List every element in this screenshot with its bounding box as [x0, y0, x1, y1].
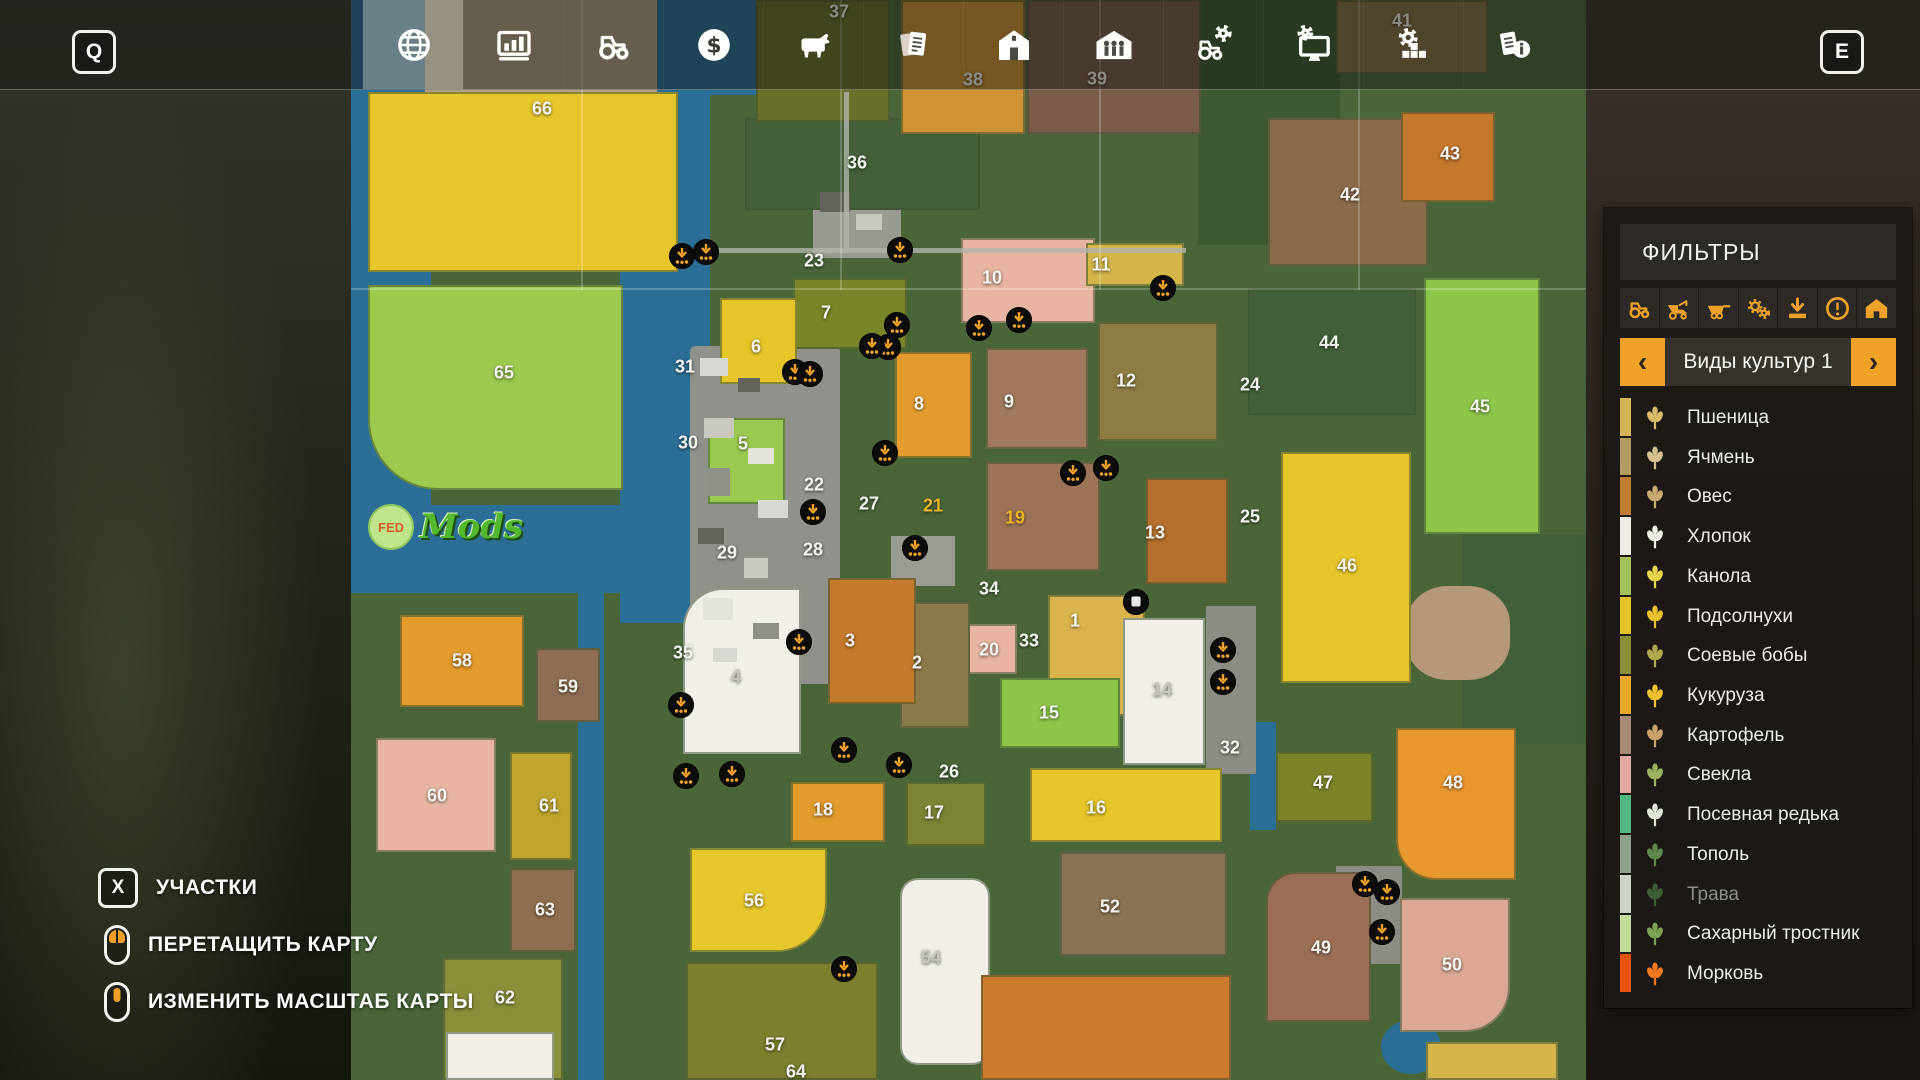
sell-point-marker-icon[interactable] [693, 239, 720, 266]
crop-filter-row[interactable]: Посевная редька [1620, 795, 1898, 835]
field-label-6: 6 [751, 337, 761, 358]
filter-button-harvester[interactable] [1660, 288, 1699, 328]
crop-icon [1640, 800, 1670, 830]
field-label-11: 11 [1091, 255, 1110, 276]
field-label-28: 28 [803, 540, 823, 561]
crop-color-stripe [1620, 438, 1631, 476]
field-label-46: 46 [1337, 556, 1357, 577]
toolbar-tab-production[interactable] [1363, 0, 1463, 89]
building [856, 214, 882, 230]
sell-point-marker-icon[interactable] [966, 315, 993, 342]
building [703, 598, 733, 620]
crop-filter-row[interactable]: Ячмень [1620, 438, 1898, 478]
crop-filter-row[interactable]: Канола [1620, 557, 1898, 597]
filter-tractor-icon [1626, 295, 1653, 322]
crop-label: Канола [1687, 566, 1751, 588]
sell-point-marker-icon[interactable] [668, 692, 695, 719]
crop-filter-row[interactable]: Пшеница [1620, 398, 1898, 438]
legend-label: ПЕРЕТАЩИТЬ КАРТУ [148, 933, 378, 957]
sell-point-marker-icon[interactable] [1374, 879, 1401, 906]
toolbar-tab-dollar[interactable]: $ [663, 0, 763, 89]
filter-button-warning[interactable] [1818, 288, 1857, 328]
field-label-19: 19 [1005, 508, 1025, 529]
toolbar-tab-cow[interactable] [763, 0, 863, 89]
crop-icon [1640, 443, 1670, 473]
field-label-15: 15 [1039, 703, 1059, 724]
info-document-icon [1494, 25, 1534, 65]
sell-point-marker-icon[interactable] [1210, 637, 1237, 664]
legend-row: ПЕРЕТАЩИТЬ КАРТУ [98, 923, 474, 967]
category-label: Виды культур 1 [1665, 338, 1851, 386]
map-controls-legend: XУЧАСТКИПЕРЕТАЩИТЬ КАРТУИЗМЕНИТЬ МАСШТАБ… [98, 866, 474, 1024]
field-label-47: 47 [1313, 773, 1333, 794]
sell-point-marker-icon[interactable] [1093, 455, 1120, 482]
crop-label: Кукуруза [1687, 685, 1765, 707]
field-17[interactable] [906, 782, 986, 846]
field-label-56: 56 [744, 891, 764, 912]
crop-label: Хлопок [1687, 526, 1751, 548]
sell-point-marker-icon[interactable] [1150, 275, 1177, 302]
field-15[interactable] [1000, 678, 1120, 748]
crop-color-stripe [1620, 756, 1631, 794]
field-label-31: 31 [675, 357, 695, 378]
crop-color-stripe [1620, 398, 1631, 436]
crop-icon [1640, 880, 1670, 910]
field-area[interactable] [1426, 1042, 1558, 1080]
field-label-59: 59 [558, 677, 578, 698]
crop-filter-row[interactable]: Хлопок [1620, 517, 1898, 557]
filter-button-download[interactable] [1778, 288, 1817, 328]
crop-filter-row[interactable]: Овес [1620, 477, 1898, 517]
building [708, 468, 730, 496]
crop-icon [1640, 641, 1670, 671]
field-label-16: 16 [1086, 798, 1106, 819]
field-label-63: 63 [535, 900, 555, 921]
field-label-3: 3 [845, 631, 855, 652]
filter-button-gears[interactable] [1739, 288, 1778, 328]
crop-filter-row[interactable]: Подсолнухи [1620, 597, 1898, 637]
toolbar-tab-infodoc[interactable] [1463, 0, 1563, 89]
field-18[interactable] [791, 782, 885, 842]
crop-label: Тополь [1687, 844, 1749, 866]
field-3[interactable] [828, 578, 916, 704]
maintenance-tractor-gear-icon [1194, 25, 1234, 65]
field-label-29: 29 [717, 543, 737, 564]
crop-filter-row[interactable]: Свекла [1620, 756, 1898, 796]
toolbar-tab-monitor[interactable] [1263, 0, 1363, 89]
field-52[interactable] [1060, 852, 1227, 956]
watermark-badge: FED [368, 504, 414, 550]
field-label-18: 18 [813, 800, 833, 821]
crop-icon [1640, 840, 1670, 870]
building [753, 623, 779, 639]
mouse-wheel-icon [104, 982, 130, 1022]
crop-color-stripe [1620, 676, 1631, 714]
sell-point-marker-icon[interactable] [831, 956, 858, 983]
crop-color-stripe [1620, 795, 1631, 833]
field-label-35: 35 [673, 643, 693, 664]
sell-point-marker-icon[interactable] [719, 761, 746, 788]
field-label-62: 62 [495, 988, 515, 1009]
crop-label: Картофель [1687, 725, 1784, 747]
field-label-14: 14 [1152, 680, 1172, 701]
sell-point-marker-icon[interactable] [886, 752, 913, 779]
sell-point-marker-icon[interactable] [859, 333, 886, 360]
crop-icon [1640, 562, 1670, 592]
production-gear-blocks-icon [1394, 25, 1434, 65]
watermark-script: Mods [420, 507, 523, 547]
svg-text:$: $ [706, 33, 721, 58]
field-label-42: 42 [1340, 185, 1360, 206]
crop-filter-row[interactable]: Тополь [1620, 835, 1898, 875]
field-label-58: 58 [452, 651, 472, 672]
top-menu-toolbar: $ [0, 0, 1920, 90]
filter-button-tractor[interactable] [1620, 288, 1659, 328]
field-label-26: 26 [939, 762, 959, 783]
garage-shed-people-icon [1094, 25, 1134, 65]
map-grid-line [351, 288, 1586, 290]
toolbar-tab-globe[interactable] [363, 0, 463, 89]
filter-category-selector: ‹ Виды культур 1 › [1620, 338, 1896, 386]
field-label-4: 4 [731, 667, 741, 688]
category-prev-button[interactable]: ‹ [1620, 338, 1665, 386]
mod-watermark: FEDMods [368, 504, 523, 550]
field-label-8: 8 [914, 394, 924, 415]
toolbar-tab-documents[interactable] [863, 0, 963, 89]
crop-icon [1640, 522, 1670, 552]
building [700, 358, 728, 376]
field-label-44: 44 [1319, 333, 1339, 354]
field-label-34: 34 [979, 579, 999, 600]
filter-harvester-icon [1665, 295, 1692, 322]
field-label-27: 27 [859, 494, 879, 515]
crop-filter-row[interactable]: Картофель [1620, 716, 1898, 756]
building [748, 448, 774, 464]
filter-quick-icons [1620, 288, 1896, 328]
crop-filter-list: ПшеницаЯчменьОвесХлопокКанолаПодсолнухиС… [1620, 398, 1898, 994]
crop-icon [1640, 760, 1670, 790]
crop-color-stripe [1620, 597, 1631, 635]
crop-color-stripe [1620, 517, 1631, 555]
crop-icon [1640, 602, 1670, 632]
hotkey-q: Q [72, 30, 116, 74]
road [686, 248, 1186, 253]
toolbar-tab-tractor[interactable] [563, 0, 663, 89]
field-48[interactable] [1396, 728, 1516, 880]
field-label-65: 65 [494, 363, 514, 384]
field-label-61: 61 [539, 796, 559, 817]
crop-filter-row[interactable]: Морковь [1620, 954, 1898, 994]
sell-point-marker-icon[interactable] [1060, 460, 1087, 487]
sell-point-marker-icon[interactable] [1123, 589, 1150, 616]
filters-panel: ФИЛЬТРЫ ‹ Виды культур 1 › ПшеницаЯчмень… [1604, 208, 1912, 1008]
field-label-20: 20 [979, 640, 999, 661]
sell-point-marker-icon[interactable] [831, 737, 858, 764]
field-label-24: 24 [1240, 375, 1260, 396]
field-label-54: 54 [921, 948, 941, 969]
filter-trailer-icon [1705, 295, 1732, 322]
settings-monitor-icon [1294, 25, 1334, 65]
crop-icon [1640, 959, 1670, 989]
field-label-36: 36 [847, 153, 867, 174]
legend-row: ИЗМЕНИТЬ МАСШТАБ КАРТЫ [98, 980, 474, 1024]
legend-label: ИЗМЕНИТЬ МАСШТАБ КАРТЫ [148, 990, 474, 1014]
filter-gears-icon [1745, 295, 1772, 322]
crop-color-stripe [1620, 915, 1631, 953]
filter-button-home[interactable] [1857, 288, 1896, 328]
field-label-2: 2 [912, 653, 922, 674]
field-16[interactable] [1030, 768, 1222, 842]
field-label-13: 13 [1145, 523, 1165, 544]
contracts-documents-icon [894, 25, 934, 65]
field-4[interactable] [683, 588, 801, 754]
field-label-23: 23 [804, 251, 824, 272]
crop-icon [1640, 681, 1670, 711]
building [744, 558, 768, 578]
field-label-7: 7 [821, 303, 831, 324]
field-label-52: 52 [1100, 897, 1120, 918]
field-label-9: 9 [1004, 392, 1014, 413]
sell-point-marker-icon[interactable] [669, 243, 696, 270]
hotkey-e: E [1820, 30, 1864, 74]
crop-icon [1640, 482, 1670, 512]
crop-filter-row[interactable]: Трава [1620, 875, 1898, 915]
animals-cow-icon [794, 25, 834, 65]
terrain-patch [1406, 586, 1510, 680]
building [704, 418, 734, 438]
field-label-60: 60 [427, 786, 447, 807]
crop-label: Трава [1687, 884, 1739, 906]
field-label-25: 25 [1240, 507, 1260, 528]
filter-download-icon [1784, 295, 1811, 322]
field-9[interactable] [986, 348, 1088, 449]
toolbar-icons: $ [363, 0, 1563, 89]
crop-label: Ячмень [1687, 447, 1755, 469]
field-label-49: 49 [1311, 938, 1331, 959]
legend-row: XУЧАСТКИ [98, 866, 474, 910]
finances-dollar-icon: $ [694, 25, 734, 65]
field-label-17: 17 [924, 803, 944, 824]
field-label-10: 10 [982, 268, 1002, 289]
crop-color-stripe [1620, 557, 1631, 595]
vehicles-tractor-icon [594, 25, 634, 65]
field-54[interactable] [900, 878, 990, 1065]
hotkey-x: X [98, 868, 138, 908]
crop-filter-row[interactable]: Сахарный тростник [1620, 915, 1898, 955]
crop-filter-row[interactable]: Соевые бобы [1620, 636, 1898, 676]
building [758, 500, 788, 518]
terrain-patch [1198, 120, 1270, 245]
crop-color-stripe [1620, 835, 1631, 873]
crop-label: Сахарный тростник [1687, 923, 1859, 945]
mouse-drag-icon [104, 925, 130, 965]
building [738, 378, 760, 392]
crop-icon [1640, 919, 1670, 949]
crop-label: Морковь [1687, 963, 1763, 985]
crop-icon [1640, 721, 1670, 751]
statistics-chart-icon [494, 25, 534, 65]
field-label-45: 45 [1470, 397, 1490, 418]
field-label-66: 66 [532, 99, 552, 120]
field-label-21: 21 [923, 496, 943, 517]
field-label-22: 22 [804, 475, 824, 496]
toolbar-tab-tractorgear[interactable] [1163, 0, 1263, 89]
crop-filter-row[interactable]: Кукуруза [1620, 676, 1898, 716]
field-66[interactable] [368, 92, 678, 272]
field-label-57: 57 [765, 1035, 785, 1056]
buildings-barn-icon [994, 25, 1034, 65]
field-label-48: 48 [1443, 773, 1463, 794]
sell-point-marker-icon[interactable] [1210, 669, 1237, 696]
crop-label: Посевная редька [1687, 804, 1839, 826]
sell-point-marker-icon[interactable] [800, 499, 827, 526]
field-label-50: 50 [1442, 955, 1462, 976]
field-label-43: 43 [1440, 144, 1460, 165]
game-map-screen: 6665363738394142434445231011763153089122… [0, 0, 1920, 1080]
sell-point-marker-icon[interactable] [1006, 307, 1033, 334]
filters-panel-title: ФИЛЬТРЫ [1620, 224, 1896, 280]
field-label-5: 5 [738, 434, 748, 455]
field-area[interactable] [981, 975, 1231, 1080]
sell-point-marker-icon[interactable] [786, 629, 813, 656]
crop-label: Соевые бобы [1687, 645, 1807, 667]
sell-point-marker-icon[interactable] [887, 237, 914, 264]
field-label-12: 12 [1116, 371, 1136, 392]
crop-color-stripe [1620, 636, 1631, 674]
toolbar-tab-chart[interactable] [463, 0, 563, 89]
crop-label: Подсолнухи [1687, 606, 1793, 628]
crop-color-stripe [1620, 875, 1631, 913]
crop-label: Свекла [1687, 764, 1751, 786]
crop-icon [1640, 403, 1670, 433]
crop-label: Пшеница [1687, 407, 1769, 429]
field-label-32: 32 [1220, 738, 1240, 759]
sell-point-marker-icon[interactable] [902, 535, 929, 562]
building [713, 648, 737, 662]
filter-button-trailer[interactable] [1699, 288, 1738, 328]
map-globe-icon [394, 25, 434, 65]
field-label-64: 64 [786, 1062, 806, 1080]
filter-warning-icon [1824, 295, 1851, 322]
sell-point-marker-icon[interactable] [1369, 919, 1396, 946]
field-label-1: 1 [1070, 611, 1080, 632]
crop-color-stripe [1620, 716, 1631, 754]
crop-color-stripe [1620, 477, 1631, 515]
field-65[interactable] [368, 285, 623, 490]
category-next-button[interactable]: › [1851, 338, 1896, 386]
sell-point-marker-icon[interactable] [797, 361, 824, 388]
field-label-30: 30 [678, 433, 698, 454]
sell-point-marker-icon[interactable] [872, 440, 899, 467]
toolbar-tab-shed[interactable] [1063, 0, 1163, 89]
crop-label: Овес [1687, 486, 1732, 508]
field-area[interactable] [446, 1032, 554, 1080]
crop-color-stripe [1620, 954, 1631, 992]
toolbar-tab-barn[interactable] [963, 0, 1063, 89]
filter-home-icon [1863, 295, 1890, 322]
field-label-33: 33 [1019, 631, 1039, 652]
sell-point-marker-icon[interactable] [673, 763, 700, 790]
field-8[interactable] [895, 352, 972, 458]
legend-label: УЧАСТКИ [156, 876, 257, 900]
